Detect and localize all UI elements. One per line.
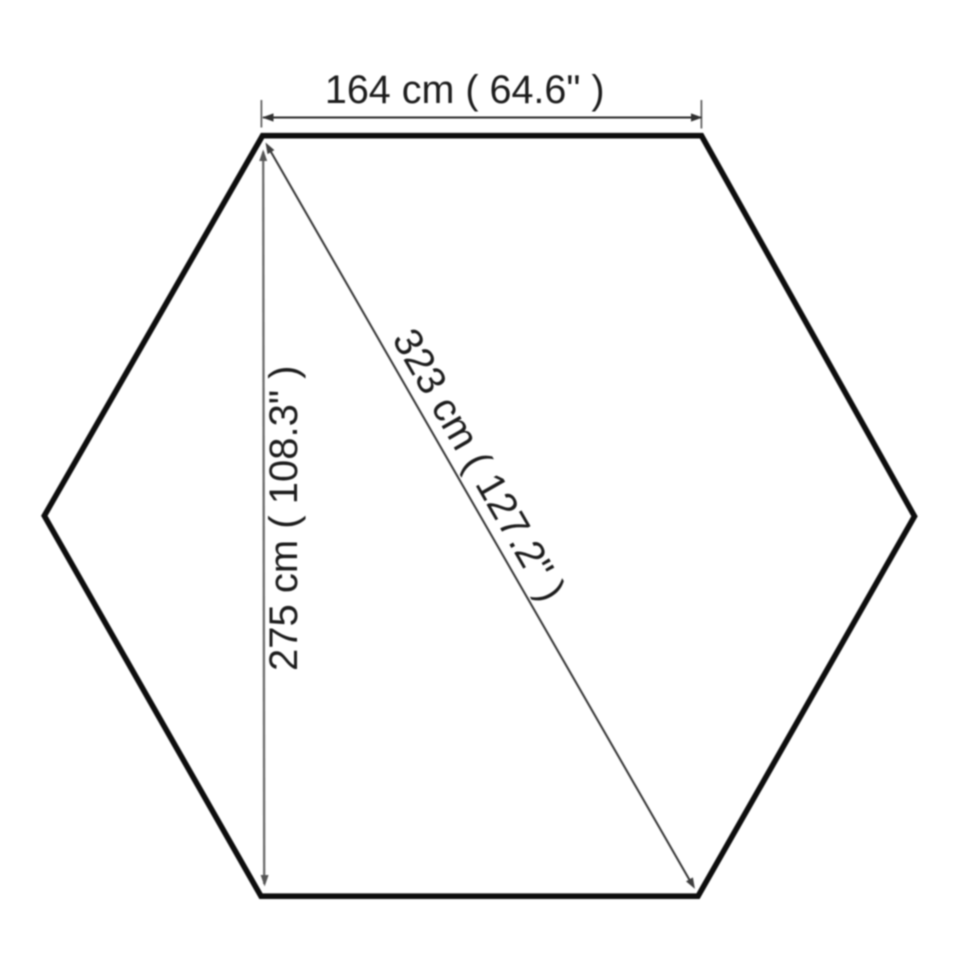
svg-text:275 cm ( 108.3" ): 275 cm ( 108.3" ): [262, 366, 306, 671]
svg-text:164 cm ( 64.6" ): 164 cm ( 64.6" ): [325, 68, 605, 112]
